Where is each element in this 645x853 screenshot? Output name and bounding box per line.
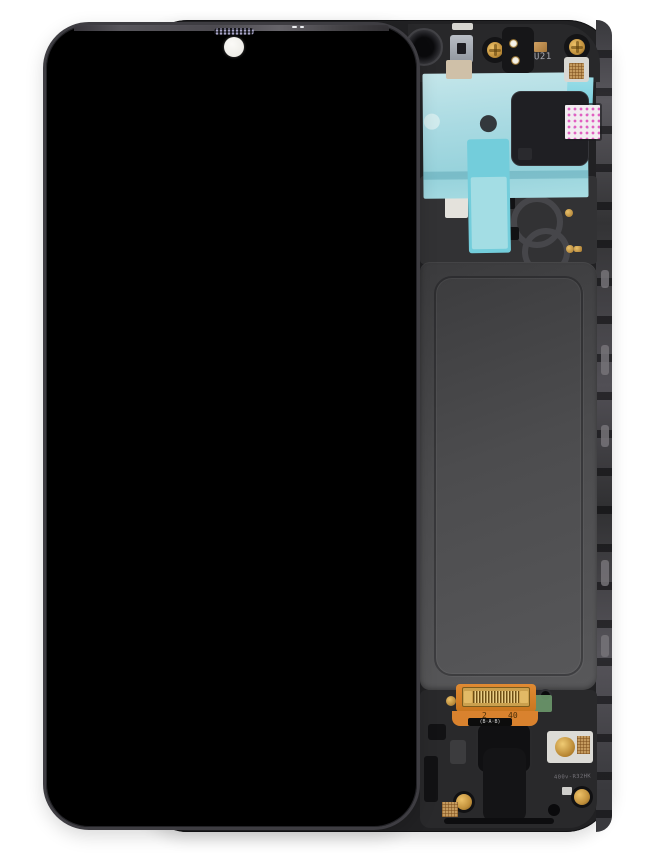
panel-emboss-line (434, 276, 583, 676)
qc-sticker (565, 105, 600, 139)
connector-pins (473, 691, 519, 703)
board-connector (462, 687, 530, 707)
film-hole (480, 115, 497, 132)
spring-contact (511, 56, 520, 65)
edge-highlight (292, 26, 297, 28)
spring-contact (566, 245, 574, 253)
antenna-bracket (547, 731, 593, 763)
bottom-edge-slot (444, 818, 554, 824)
screw (574, 789, 590, 805)
product-photo-canvas: 2 40 (B·A·B) 400v-R32HK (0, 0, 645, 853)
molded-ring (522, 228, 570, 264)
front-display-assembly (43, 22, 420, 830)
spring-contact (509, 39, 518, 48)
molded-ridge (450, 740, 466, 764)
copper-mesh-pad (569, 63, 584, 79)
proximity-sensor-window (450, 35, 473, 63)
gold-contact (555, 737, 575, 757)
molded-block (424, 756, 438, 802)
earpiece-bracket (502, 27, 534, 73)
molded-code-text: 400v-R32HK (554, 773, 600, 781)
sensor-core (457, 43, 466, 54)
rail-clip-slot (601, 635, 609, 657)
flex-cable-tail: 2 40 (B·A·B) (452, 711, 538, 726)
screw (569, 39, 585, 55)
pcb-tab (534, 695, 552, 712)
spring-contact (565, 209, 573, 217)
module-notch (518, 148, 532, 160)
edge-highlight (300, 26, 304, 28)
display-back-panel (420, 262, 597, 690)
metal-tab (452, 23, 473, 30)
foam-pad (562, 787, 572, 795)
front-camera-punch-hole (224, 37, 244, 57)
connector-pad (520, 691, 528, 703)
screw (487, 42, 503, 58)
connector-pad (464, 691, 472, 703)
copper-mesh-pad (442, 802, 458, 817)
bottom-molded-area: 2 40 (B·A·B) 400v-R32HK (420, 690, 597, 828)
film-hole (424, 114, 440, 130)
copper-mesh-pad (577, 736, 590, 754)
component-marking-text: U21 (534, 52, 562, 64)
adhesive-pull-strip (467, 139, 511, 254)
rail-clip-slot (601, 345, 609, 375)
earpiece-speaker-grille (214, 28, 254, 35)
screw (456, 794, 472, 810)
rail-clip-slot (601, 560, 609, 586)
screw-hole (548, 804, 560, 816)
adhesive-pull-strip-inner (471, 177, 508, 250)
screw (446, 696, 456, 706)
antenna-bracket (446, 60, 472, 79)
molded-block (428, 724, 446, 740)
spring-contact (574, 246, 582, 252)
lcd-flex-connector (456, 684, 536, 712)
antenna-bracket (564, 57, 589, 82)
flex-label: (B·A·B) (468, 718, 512, 726)
rail-clip-slot (601, 270, 609, 288)
copper-pad (534, 42, 547, 52)
speaker-enclosure (483, 748, 526, 822)
rail-clip-slot (601, 425, 609, 447)
